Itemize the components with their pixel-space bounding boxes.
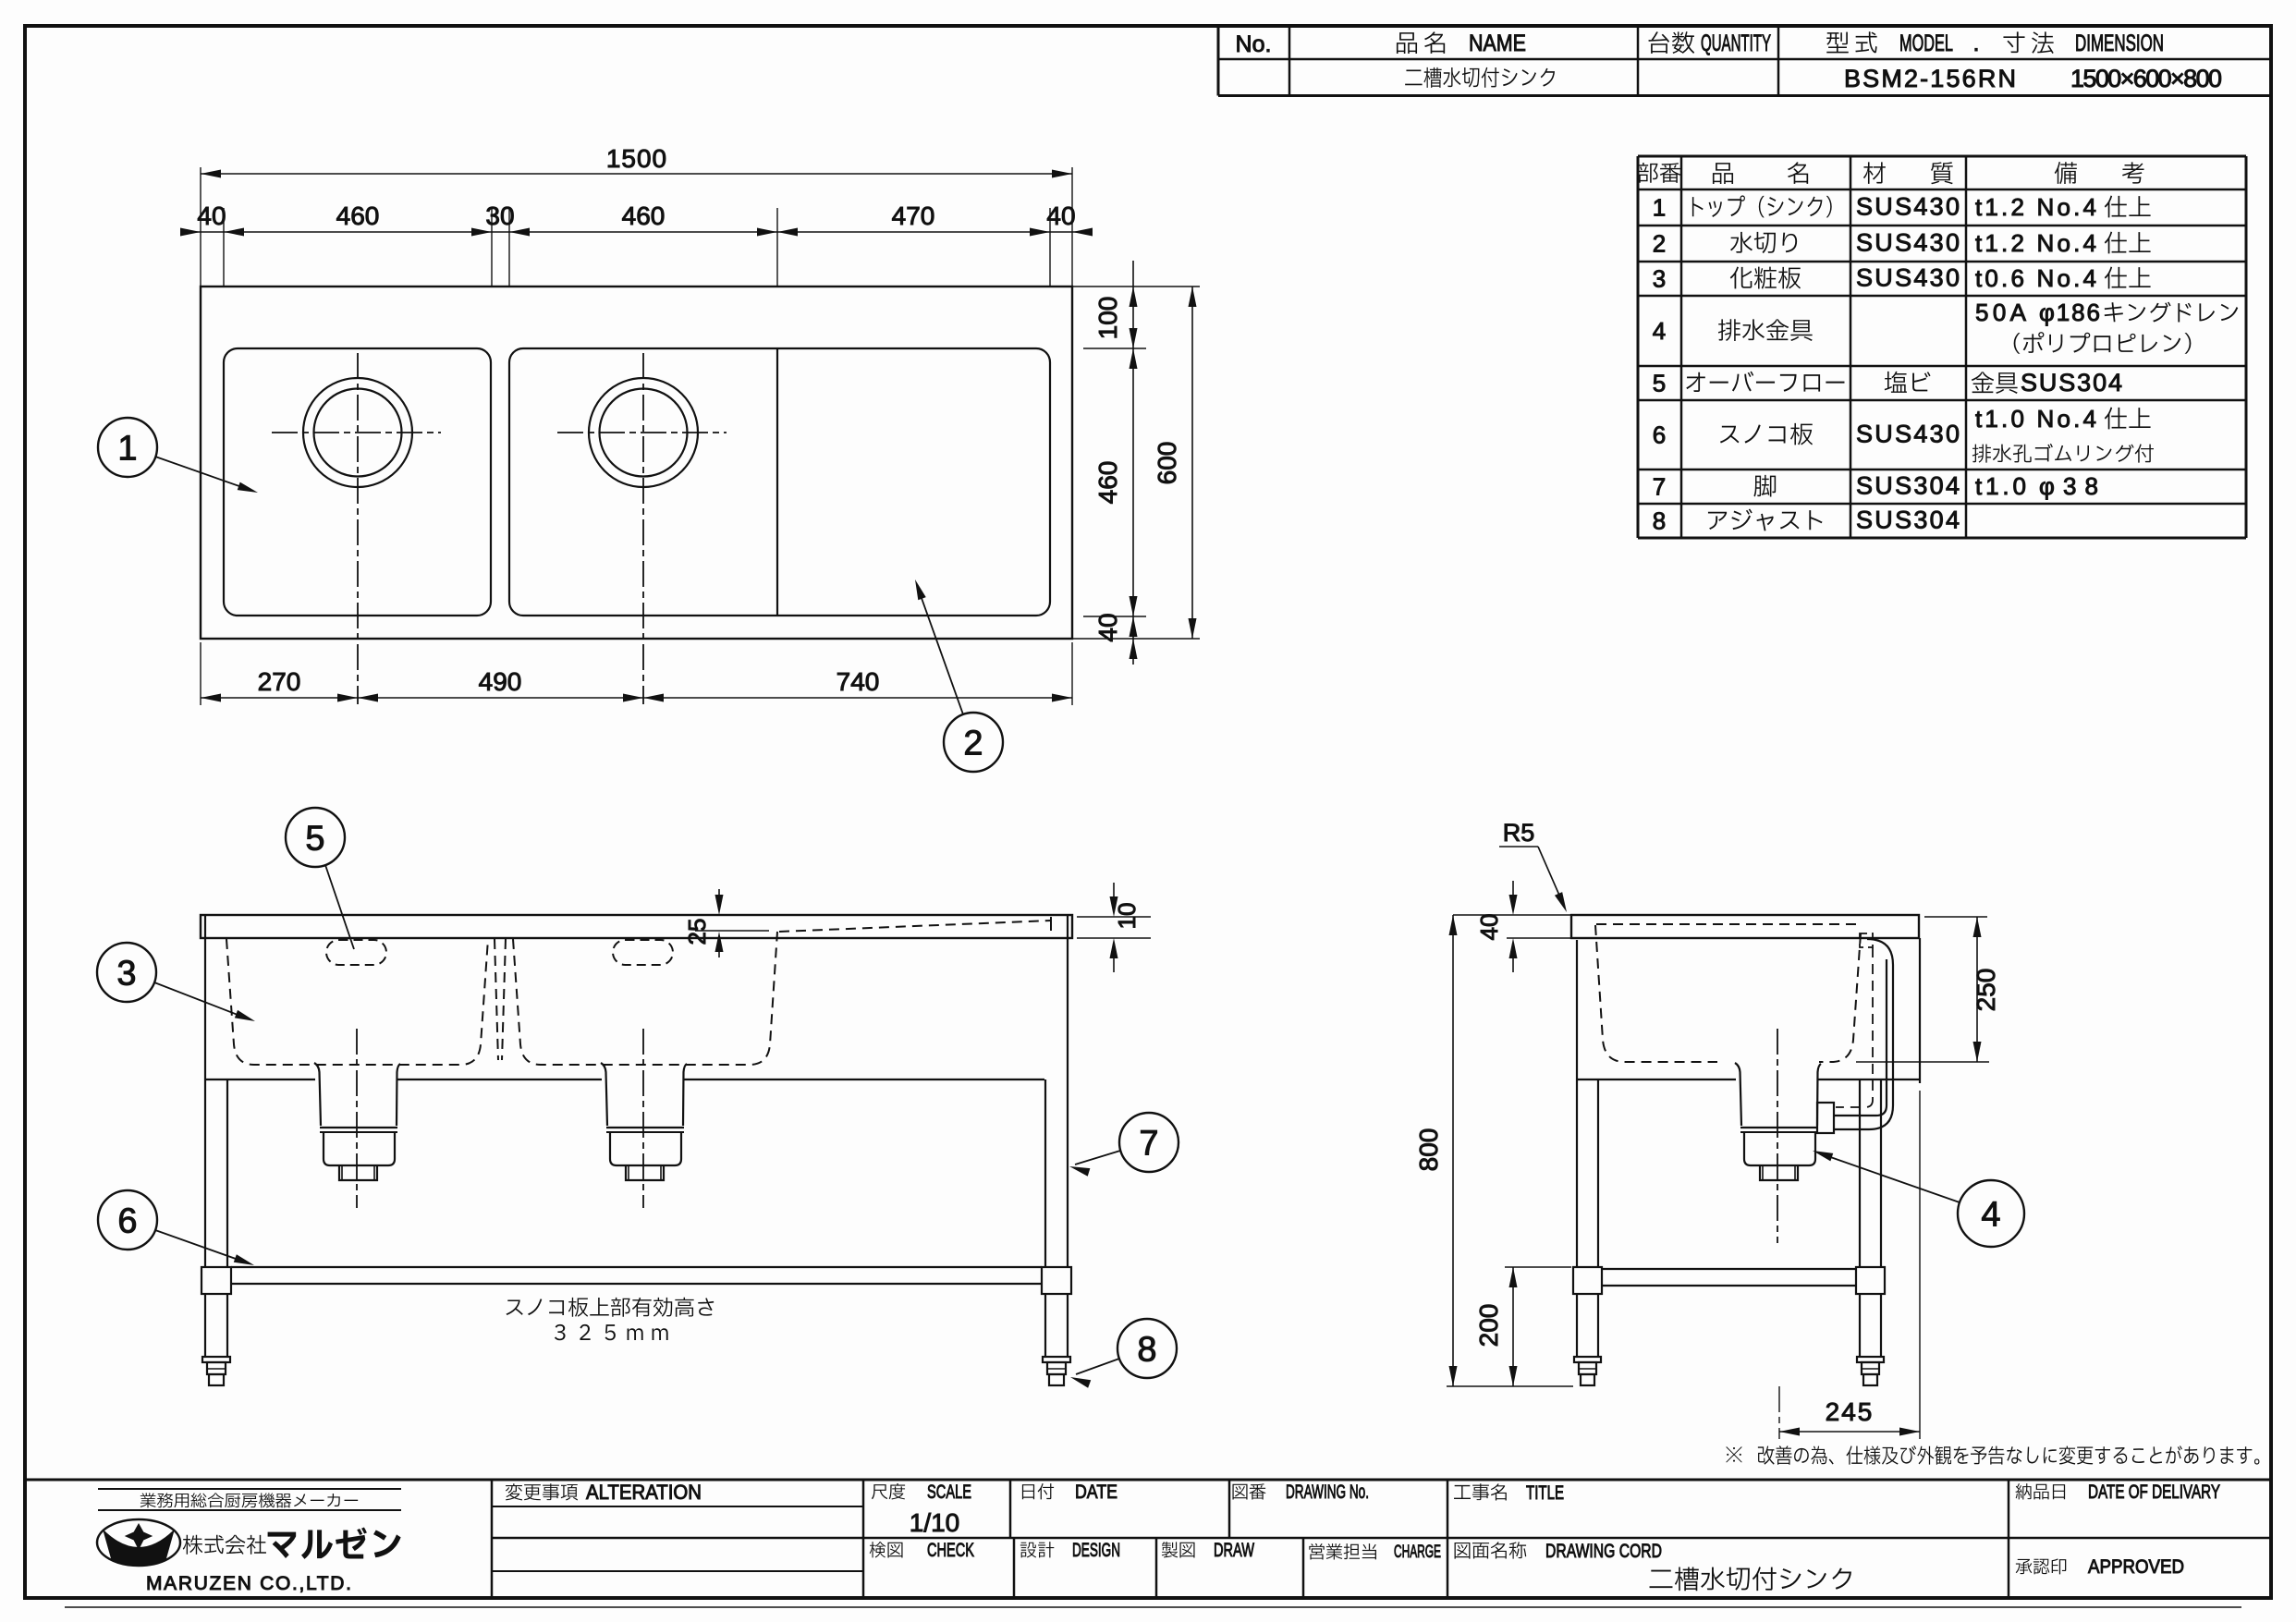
svg-text:1: 1 [1653,194,1666,222]
svg-text:250: 250 [1972,969,2000,1012]
svg-text:4: 4 [1981,1195,2000,1234]
svg-text:DATE OF DELIVARY: DATE OF DELIVARY [2088,1482,2220,1503]
svg-text:SCALE: SCALE [927,1482,971,1503]
svg-text:MODEL: MODEL [1899,30,1953,56]
svg-text:470: 470 [892,201,935,230]
svg-text:DRAWING CORD: DRAWING CORD [1545,1541,1662,1562]
svg-text:40: 40 [1046,201,1075,230]
svg-text:5: 5 [1653,370,1666,397]
svg-text:8: 8 [1137,1330,1156,1369]
svg-text:φ186: φ186 [2039,299,2100,326]
svg-text:6: 6 [1653,421,1666,449]
svg-text:1500×600×800: 1500×600×800 [2070,65,2222,92]
svg-text:CHARGE: CHARGE [1394,1543,1441,1562]
svg-text:25: 25 [683,919,711,945]
svg-text:10: 10 [1113,903,1141,930]
svg-text:8: 8 [1653,507,1666,535]
svg-text:No.: No. [1236,31,1272,57]
svg-text:800: 800 [1414,1128,1443,1172]
svg-text:40: 40 [1093,613,1122,641]
svg-text:30: 30 [485,201,514,230]
svg-text:3: 3 [1653,265,1666,293]
svg-text:460: 460 [1093,461,1122,505]
svg-text:CHECK: CHECK [927,1540,974,1561]
svg-text:40: 40 [1475,914,1503,941]
svg-text:100: 100 [1093,297,1122,340]
svg-text:BSM2-156RN: BSM2-156RN [1844,65,2016,92]
svg-text:TITLE: TITLE [1526,1482,1564,1504]
svg-text:2: 2 [963,724,983,762]
svg-text:NAME: NAME [1469,30,1526,56]
svg-text:40: 40 [197,201,226,230]
svg-text:5: 5 [305,819,324,858]
svg-text:1/10: 1/10 [910,1508,960,1537]
svg-text:200: 200 [1474,1304,1503,1348]
svg-text:ALTERATION: ALTERATION [586,1481,702,1504]
svg-text:6: 6 [117,1201,137,1240]
svg-text:DRAW: DRAW [1214,1540,1254,1561]
svg-text:DIMENSION: DIMENSION [2075,30,2164,56]
svg-text:270: 270 [258,667,301,696]
svg-text:490: 490 [479,667,522,696]
svg-text:APPROVED: APPROVED [2088,1556,2184,1578]
svg-text:DATE: DATE [1075,1482,1117,1503]
svg-text:DESIGN: DESIGN [1072,1540,1120,1561]
svg-text:QUANTITY: QUANTITY [1701,30,1771,56]
svg-text:245: 245 [1826,1397,1875,1426]
svg-text:7: 7 [1653,473,1666,501]
svg-text:φ38: φ38 [2039,472,2098,500]
svg-text:460: 460 [622,201,666,230]
svg-text:1500: 1500 [606,144,667,173]
svg-text:4: 4 [1653,317,1666,345]
svg-text:.: . [1973,30,1980,56]
svg-text:460: 460 [336,201,380,230]
svg-text:2: 2 [1653,230,1666,258]
svg-text:7: 7 [1139,1124,1158,1163]
svg-text:740: 740 [837,667,880,696]
svg-text:R5: R5 [1503,819,1535,847]
svg-text:DRAWING No.: DRAWING No. [1286,1482,1369,1503]
svg-text:50A: 50A [1975,299,2027,326]
svg-text:1: 1 [117,429,137,468]
svg-text:600: 600 [1153,442,1181,485]
svg-text:3: 3 [116,954,136,993]
